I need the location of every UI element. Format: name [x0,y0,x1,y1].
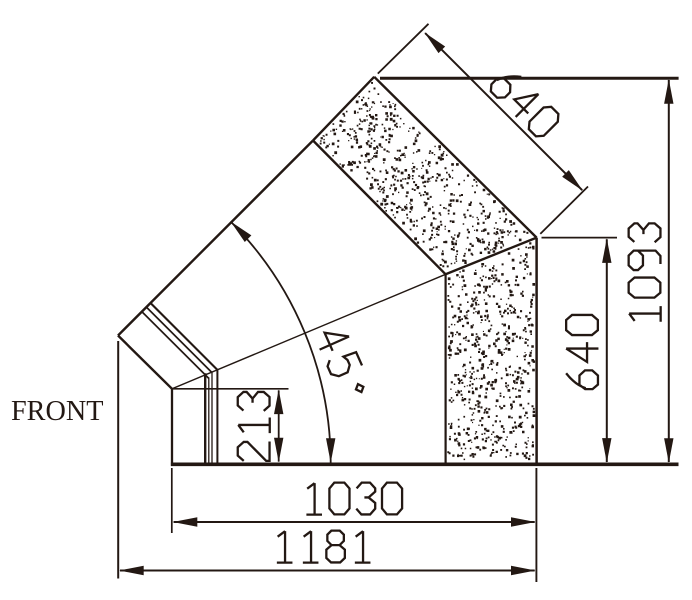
svg-text:FRONT: FRONT [11,396,103,427]
